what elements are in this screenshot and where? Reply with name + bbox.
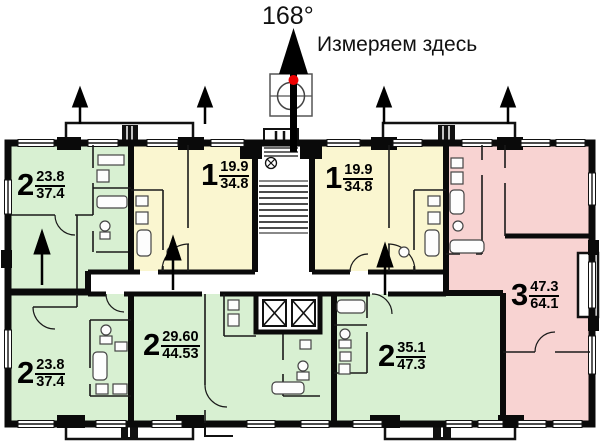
room-count: 2: [143, 330, 160, 359]
room-count: 2: [17, 358, 34, 387]
room-count: 3: [511, 280, 528, 309]
floor-plan-page: 168° Измеряем здесь 2 23.8 37.4 1 19.9 3…: [0, 0, 600, 441]
elevator-block: [256, 294, 320, 332]
living-area: 47.3: [529, 280, 559, 297]
direction-arrow: [501, 87, 516, 124]
door-symbol: [266, 158, 277, 169]
elevator-right-icon: [292, 300, 315, 326]
living-area: 19.9: [343, 163, 373, 180]
apartment-label-1-right: 1 19.9 34.8: [325, 163, 373, 195]
living-area: 23.8: [35, 170, 65, 187]
measure-note: Измеряем здесь: [317, 33, 477, 57]
apartment-label-3-right: 3 47.3 64.1: [511, 280, 559, 312]
floor-plan-drawing: [0, 0, 600, 441]
living-area: 35.1: [396, 341, 426, 358]
direction-arrow: [198, 87, 213, 124]
apartment-label-2-top-left: 2 23.8 37.4: [17, 170, 65, 202]
elevator-left-icon: [263, 300, 286, 326]
stairwell-region: [255, 145, 312, 272]
apartment-label-2-bottom-left: 2 23.8 37.4: [17, 358, 65, 390]
living-area: 29.60: [161, 330, 199, 347]
total-area: 37.4: [35, 187, 65, 202]
apartment-label-1-left: 1 19.9 34.8: [201, 160, 249, 192]
apartment-label-2-bottom-middle: 2 29.60 44.53: [143, 330, 200, 362]
total-area: 44.53: [161, 347, 199, 362]
total-area: 47.3: [396, 358, 426, 373]
direction-arrow: [73, 87, 88, 124]
bearing-value: 168°: [262, 2, 314, 31]
measure-point-dot: [289, 75, 299, 85]
living-area: 23.8: [35, 358, 65, 375]
living-area: 19.9: [219, 160, 249, 177]
direction-arrow: [377, 87, 392, 124]
apartment-label-2-bottom-right: 2 35.1 47.3: [378, 341, 426, 373]
total-area: 37.4: [35, 375, 65, 390]
room-count: 1: [201, 160, 218, 189]
room-count: 2: [17, 170, 34, 199]
total-area: 64.1: [529, 297, 559, 312]
total-area: 34.8: [219, 177, 249, 192]
room-count: 2: [378, 341, 395, 370]
room-count: 1: [325, 163, 342, 192]
total-area: 34.8: [343, 180, 373, 195]
